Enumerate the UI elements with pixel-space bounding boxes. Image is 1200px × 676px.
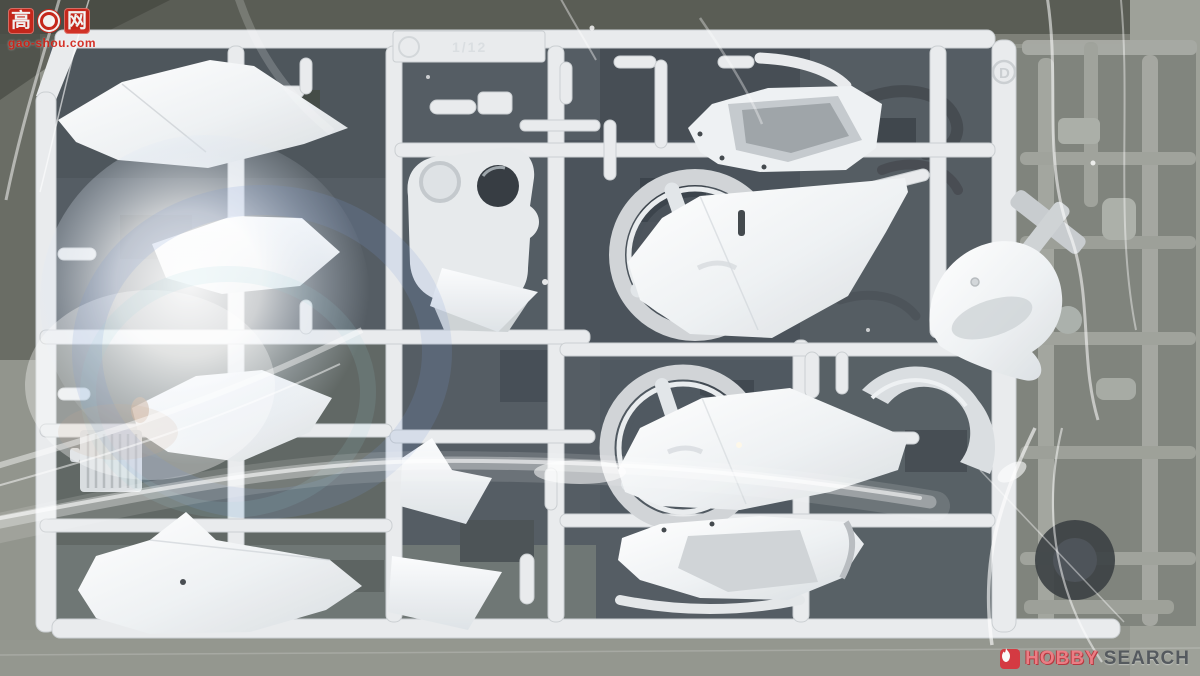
sprue-photo-illustration: 1/12 D [0,0,1200,676]
product-photo-model-kit-sprue-in-bag: 1/12 D [0,0,1200,676]
gear-icon [37,9,61,33]
watermark: 高 网 gao-shou.com [8,8,96,50]
flame-icon [1000,649,1020,669]
bag-reflections [0,0,1200,676]
logo-text-search: SEARCH [1104,648,1190,670]
hobby-search-logo: HOBBY SEARCH [1000,648,1190,670]
watermark-url: gao-shou.com [8,36,96,50]
watermark-char-left: 高 [8,8,34,34]
watermark-char-right: 网 [64,8,90,34]
logo-text-hobby: HOBBY [1025,648,1099,670]
